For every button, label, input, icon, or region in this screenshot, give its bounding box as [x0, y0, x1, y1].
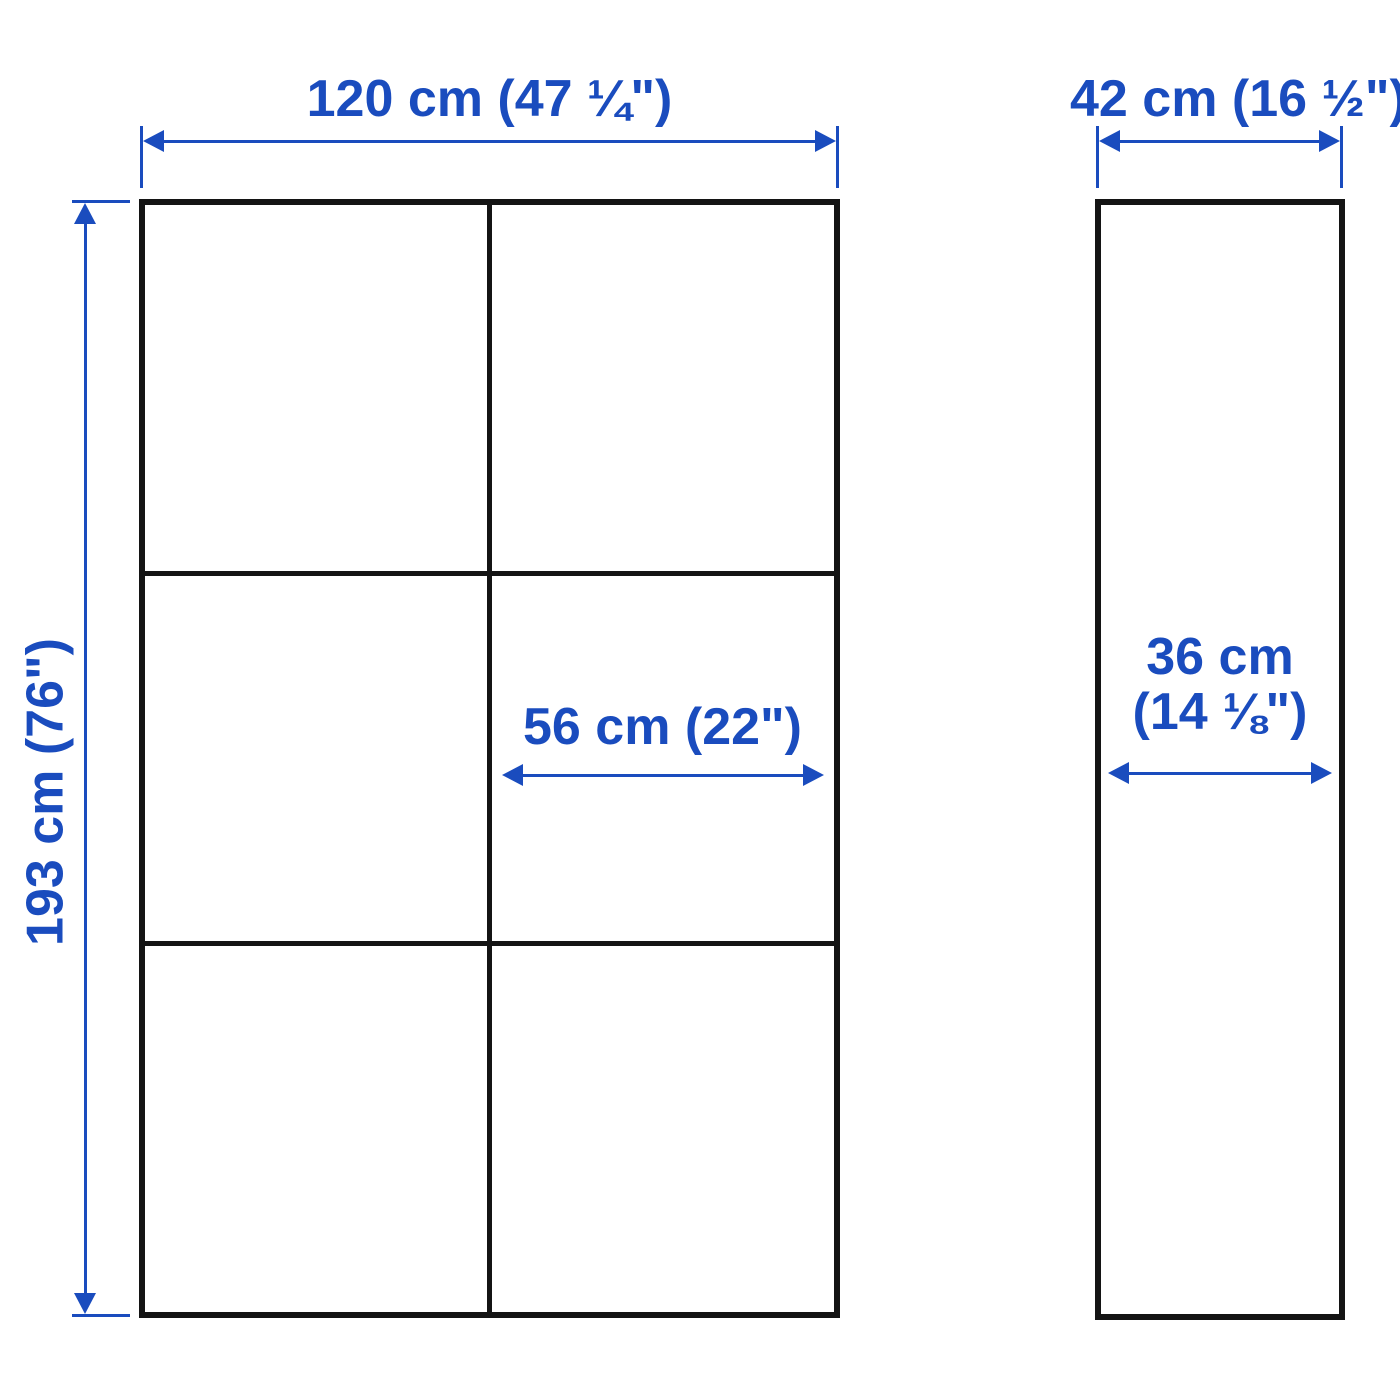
- arrowhead-up-icon: [74, 203, 96, 224]
- front-view-column-divider: [487, 205, 492, 1312]
- arrowhead-right-icon: [815, 130, 836, 152]
- width-dimension-tick-right: [836, 126, 839, 188]
- front-view-row-divider-1: [145, 571, 834, 576]
- inner-depth-label-line2: (14 ⅛"): [1133, 683, 1308, 741]
- arrowhead-left-icon: [1108, 762, 1129, 784]
- dimension-diagram: 120 cm (47 ¼") 42 cm (16 ½") 193 cm (76"…: [0, 0, 1400, 1400]
- front-view-outline: [139, 199, 840, 1318]
- height-dimension-label: 193 cm (76"): [19, 638, 74, 946]
- arrowhead-right-icon: [1319, 130, 1340, 152]
- depth-dimension-line: [1108, 140, 1332, 143]
- arrowhead-left-icon: [1099, 130, 1120, 152]
- arrowhead-right-icon: [803, 764, 824, 786]
- inner-depth-label-line1: 36 cm: [1146, 628, 1293, 686]
- side-view-outline: [1095, 199, 1345, 1320]
- depth-dimension-tick-right: [1340, 126, 1343, 188]
- inner-depth-dimension-line: [1121, 772, 1319, 775]
- cell-width-dimension-label: 56 cm (22"): [490, 700, 835, 755]
- arrowhead-left-icon: [143, 130, 164, 152]
- inner-depth-dimension-label: 36 cm (14 ⅛"): [1070, 630, 1370, 739]
- cell-width-dimension-line: [515, 774, 811, 777]
- depth-dimension-label: 42 cm (16 ½"): [1070, 72, 1370, 127]
- width-dimension-label: 120 cm (47 ¼"): [139, 72, 840, 127]
- front-view-row-divider-2: [145, 941, 834, 946]
- height-dimension-tick-bottom: [72, 1314, 130, 1317]
- height-dimension-line: [84, 212, 87, 1306]
- width-dimension-line: [152, 140, 828, 143]
- arrowhead-right-icon: [1311, 762, 1332, 784]
- arrowhead-down-icon: [74, 1293, 96, 1314]
- arrowhead-left-icon: [502, 764, 523, 786]
